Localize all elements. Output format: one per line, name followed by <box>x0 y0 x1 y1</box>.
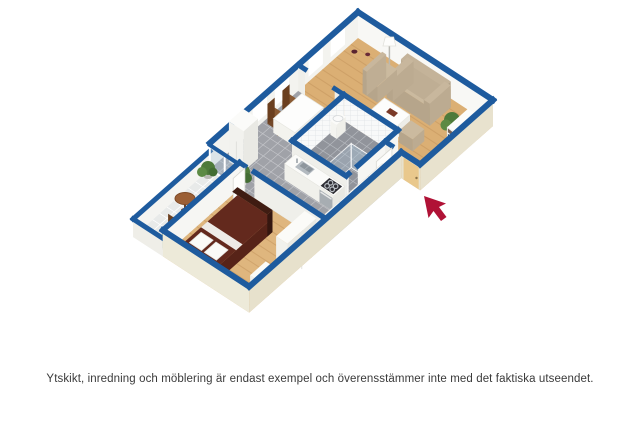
entrance-arrow-icon <box>424 196 447 221</box>
disclaimer-caption: Ytskikt, inredning och möblering är enda… <box>0 373 640 385</box>
living-dining-wall-stub <box>298 65 305 95</box>
floorplan-page: Ytskikt, inredning och möblering är enda… <box>0 0 640 427</box>
door-handle <box>415 177 417 179</box>
floor-plan-image <box>0 0 640 427</box>
